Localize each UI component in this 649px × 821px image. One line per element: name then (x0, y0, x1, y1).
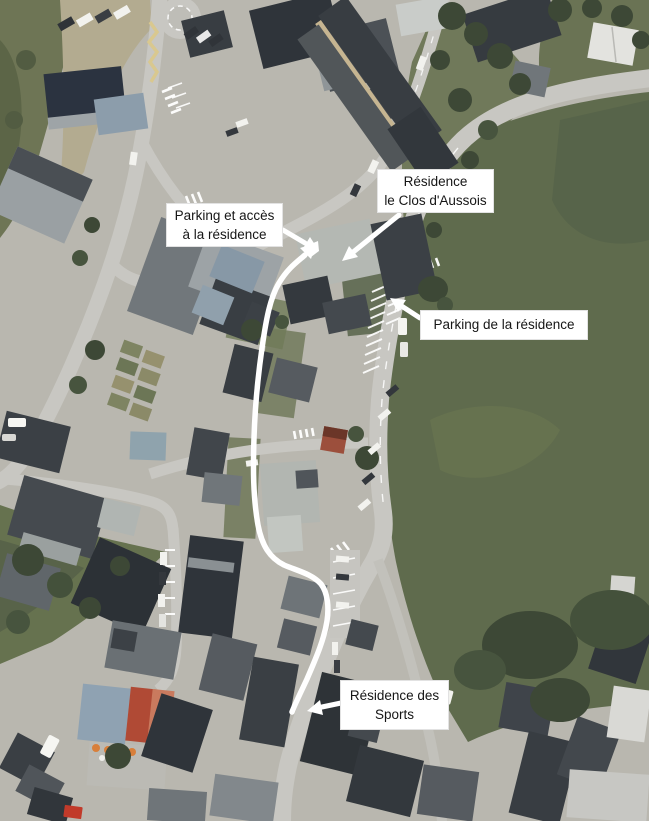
label-parking-et-acces: Parking et accès à la résidence (166, 203, 283, 247)
label-residence-le-clos-d-aussois: Résidence le Clos d'Aussois (377, 169, 494, 213)
label-line: Résidence des (344, 686, 445, 705)
aerial-photo (0, 0, 649, 821)
label-line: Parking et accès (170, 206, 279, 225)
label-line: à la résidence (170, 225, 279, 244)
label-line: le Clos d'Aussois (381, 191, 490, 210)
label-line: Sports (344, 705, 445, 724)
label-residence-des-sports: Résidence des Sports (340, 680, 449, 730)
label-line: Parking de la résidence (424, 313, 584, 337)
label-parking-de-la-residence: Parking de la résidence (420, 310, 588, 340)
annotated-aerial-map: Résidence le Clos d'Aussois Parking et a… (0, 0, 649, 821)
label-line: Résidence (381, 172, 490, 191)
